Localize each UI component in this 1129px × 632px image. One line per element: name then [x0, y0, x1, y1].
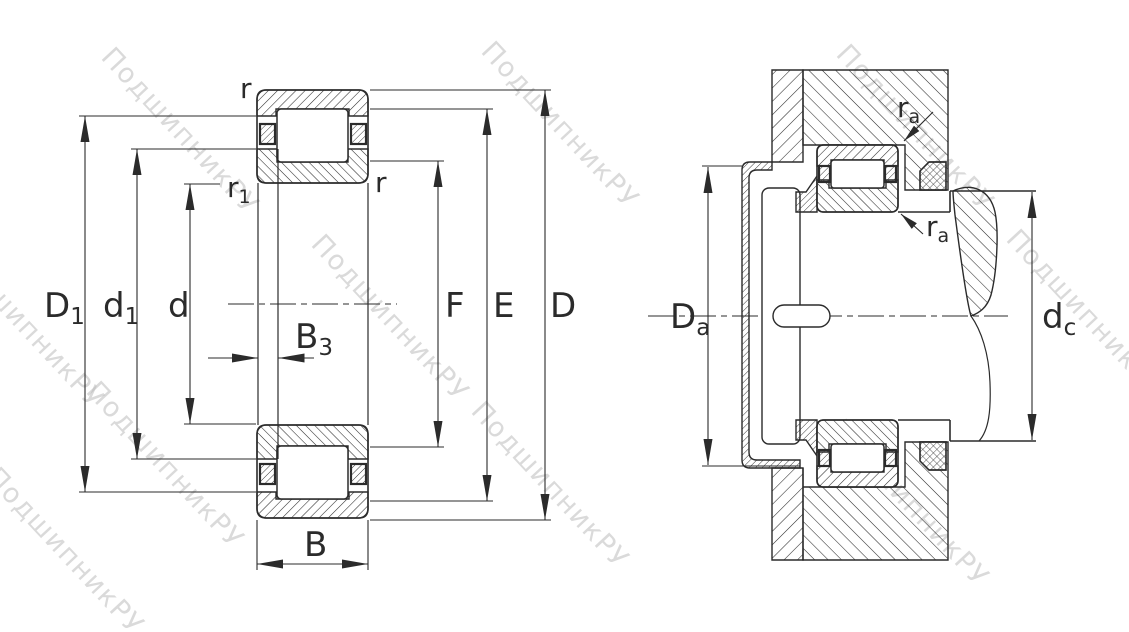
cage — [260, 464, 275, 484]
label-E: E — [493, 286, 514, 326]
shaft-centre-bore — [773, 305, 830, 327]
retaining-ring-lower-hatch — [920, 442, 946, 470]
watermark-text: ПодшипникРУ — [1000, 224, 1129, 403]
label-B3: B3 — [295, 317, 333, 361]
drawing-svg: ПодшипникРУ ПодшипникРУ ПодшипникРУ Подш… — [0, 0, 1129, 632]
label-r-top: r — [240, 72, 252, 105]
bearing-lower-section — [257, 425, 368, 518]
shaft-breakout-section — [953, 187, 997, 316]
watermark-layer: ПодшипникРУ ПодшипникРУ ПодшипникРУ Подш… — [0, 36, 1129, 632]
label-d1: d1 — [103, 286, 139, 330]
abutment-ring-lower — [796, 420, 817, 456]
label-ra-lower: ra — [926, 210, 949, 247]
watermark-text: ПодшипникРУ — [80, 376, 250, 555]
section-view: D1 d1 d F E D B3 B r r r1 — [44, 72, 576, 570]
label-D1: D1 — [44, 286, 85, 330]
watermark-text: ПодшипникРУ — [0, 462, 150, 632]
label-B: B — [304, 525, 327, 565]
label-r-inner: r — [375, 166, 387, 199]
mounting-view: Da dc ra ra — [648, 70, 1076, 560]
shaft-breakout-curve — [971, 316, 990, 441]
cage — [351, 464, 366, 484]
cage — [819, 166, 830, 182]
shaft — [898, 187, 1036, 441]
cover-flange-upper — [772, 70, 803, 162]
watermark-text: ПодшипникРУ — [465, 396, 635, 575]
cage — [885, 450, 896, 466]
retaining-ring-upper-hatch — [920, 162, 946, 190]
watermark-text: ПодшипникРУ — [475, 36, 645, 215]
label-d: d — [168, 286, 190, 326]
bearing-drawing-canvas: ПодшипникРУ ПодшипникРУ ПодшипникРУ Подш… — [0, 0, 1129, 632]
leader-ra-lower — [901, 214, 923, 234]
cage — [819, 450, 830, 466]
cover-flange-lower — [772, 468, 803, 560]
cage — [260, 124, 275, 144]
roller — [831, 444, 884, 472]
bearing-upper-section — [257, 90, 368, 183]
label-F: F — [445, 286, 465, 326]
cage — [351, 124, 366, 144]
label-Da: Da — [670, 297, 710, 341]
abutment-ring-upper — [796, 176, 817, 212]
mounted-bearing-upper — [817, 145, 898, 212]
roller — [277, 109, 348, 162]
cage — [885, 166, 896, 182]
mounted-bearing-lower — [817, 420, 898, 487]
roller — [277, 446, 348, 499]
roller — [831, 160, 884, 188]
label-D: D — [550, 286, 576, 326]
